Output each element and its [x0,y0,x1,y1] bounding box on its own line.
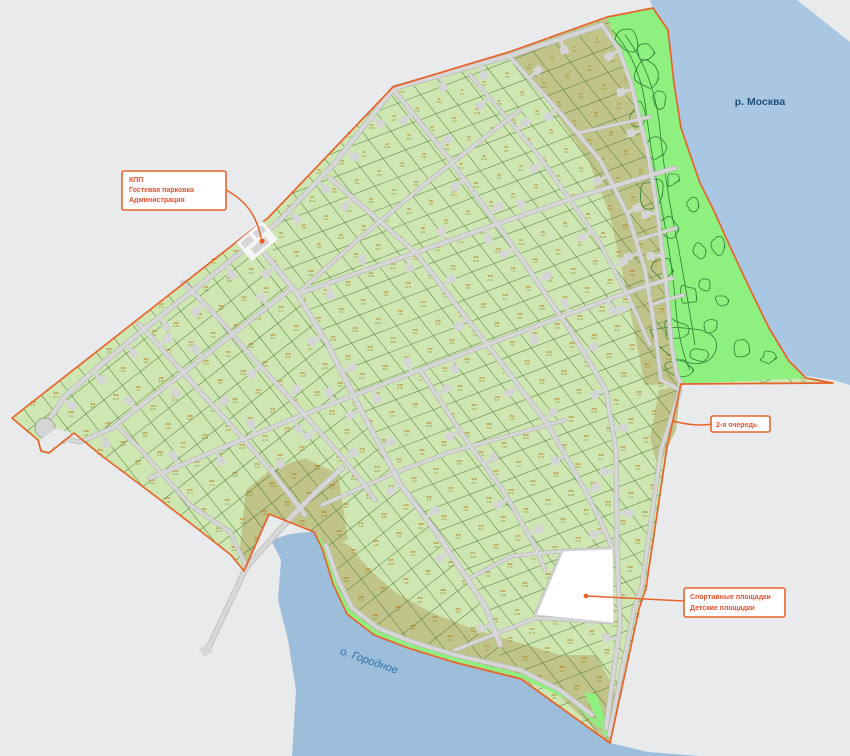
svg-text:386: 386 [403,577,408,581]
svg-text:8.06: 8.06 [437,101,442,104]
svg-text:5.19: 5.19 [359,525,364,528]
svg-text:6.34: 6.34 [233,401,238,404]
svg-text:190: 190 [629,343,634,347]
svg-text:5.46: 5.46 [569,420,574,423]
svg-text:11.78: 11.78 [529,632,536,635]
svg-text:8.56: 8.56 [382,516,387,519]
svg-text:4.37: 4.37 [392,119,397,122]
svg-text:11.00: 11.00 [487,279,494,282]
svg-text:6.50: 6.50 [434,546,439,549]
svg-text:11.51: 11.51 [508,492,515,495]
svg-text:11.07: 11.07 [465,213,472,216]
svg-text:11.00: 11.00 [481,158,488,161]
svg-text:7.80: 7.80 [552,697,557,700]
svg-text:363: 363 [336,529,341,533]
svg-text:10.15: 10.15 [338,237,345,240]
svg-text:КПП: КПП [129,177,143,184]
svg-text:5.05: 5.05 [315,394,320,397]
svg-text:11.24: 11.24 [546,354,553,357]
svg-text:5.29: 5.29 [397,535,402,538]
svg-text:10.08: 10.08 [470,556,477,559]
svg-text:4.82: 4.82 [481,306,486,309]
svg-text:4.69: 4.69 [466,287,471,290]
svg-text:5.34: 5.34 [302,227,307,230]
svg-text:354: 354 [568,489,573,493]
svg-text:5.21: 5.21 [623,227,628,230]
svg-text:9.51: 9.51 [464,509,469,512]
svg-text:4.98: 4.98 [398,313,403,316]
svg-text:5.95: 5.95 [422,156,427,159]
svg-text:10.49: 10.49 [330,339,337,342]
svg-text:10.55: 10.55 [321,515,328,518]
svg-text:5.24: 5.24 [195,465,200,468]
svg-text:11.83: 11.83 [173,325,180,328]
svg-text:10.18: 10.18 [202,437,209,440]
svg-text:7.58: 7.58 [570,346,575,349]
svg-text:49: 49 [504,145,508,149]
svg-text:369: 369 [433,541,438,545]
svg-text:11.41: 11.41 [216,530,223,533]
svg-text:5.87: 5.87 [212,262,217,265]
svg-text:297: 297 [643,436,648,440]
svg-text:10.97: 10.97 [406,212,413,215]
svg-text:6.93: 6.93 [610,60,615,63]
svg-text:6.48: 6.48 [590,633,595,636]
svg-text:11.23: 11.23 [397,387,404,390]
svg-text:302: 302 [209,479,214,483]
svg-text:10.87: 10.87 [406,138,413,141]
svg-text:6.91: 6.91 [384,294,389,297]
svg-text:5.17: 5.17 [623,301,628,304]
svg-text:4.57: 4.57 [411,628,416,631]
svg-text:8.42: 8.42 [643,515,648,518]
svg-text:329: 329 [164,496,169,500]
svg-text:10.90: 10.90 [605,504,612,507]
svg-text:371: 371 [470,551,475,555]
svg-text:10.72: 10.72 [451,194,458,197]
svg-text:5.26: 5.26 [448,639,453,642]
svg-text:7.32: 7.32 [563,225,568,228]
svg-text:6.74: 6.74 [508,566,513,569]
svg-text:5.19: 5.19 [339,311,344,314]
svg-text:9.31: 9.31 [497,177,502,180]
svg-text:7.19: 7.19 [330,487,335,490]
svg-text:11.30: 11.30 [262,439,269,442]
svg-text:154: 154 [599,305,604,309]
svg-text:6.12: 6.12 [526,289,531,292]
svg-text:6.80: 6.80 [659,385,664,388]
svg-text:8.26: 8.26 [271,337,276,340]
svg-text:9.80: 9.80 [652,413,657,416]
svg-text:11.86: 11.86 [500,594,507,597]
svg-text:168: 168 [293,324,298,328]
svg-text:10.79: 10.79 [405,286,412,289]
svg-text:7.88: 7.88 [227,280,232,283]
svg-text:59: 59 [310,195,314,199]
svg-text:10.41: 10.41 [545,503,552,506]
svg-text:6.10: 6.10 [249,272,254,275]
svg-text:319: 319 [471,477,476,481]
svg-text:10.27: 10.27 [149,482,156,485]
svg-text:11.57: 11.57 [479,380,486,383]
svg-text:349: 349 [500,515,505,519]
svg-text:11.06: 11.06 [269,485,276,488]
svg-text:4.44: 4.44 [373,618,378,621]
svg-text:6.64: 6.64 [308,348,313,351]
svg-text:413: 413 [447,634,452,638]
svg-text:8.10: 8.10 [360,451,365,454]
svg-text:6.11: 6.11 [508,640,513,643]
svg-text:98: 98 [586,212,590,216]
svg-text:7.63: 7.63 [621,523,626,526]
svg-text:р. Москва: р. Москва [735,96,786,108]
svg-text:11.58: 11.58 [601,88,608,91]
svg-text:251: 251 [457,384,462,388]
svg-text:68: 68 [474,181,478,185]
svg-text:6.09: 6.09 [211,336,216,339]
svg-text:10.31: 10.31 [359,377,366,380]
svg-text:149: 149 [502,293,507,297]
svg-text:7.14: 7.14 [511,270,516,273]
svg-text:6.07: 6.07 [271,411,276,414]
svg-text:6.22: 6.22 [181,446,186,449]
svg-text:428: 428 [596,675,601,679]
svg-text:5.21: 5.21 [219,308,224,311]
svg-text:8.21: 8.21 [91,406,96,409]
svg-text:5.30: 5.30 [630,274,635,277]
svg-text:326: 326 [598,453,603,457]
svg-text:7.57: 7.57 [485,649,490,652]
svg-text:7.34: 7.34 [579,170,584,173]
svg-text:11.55: 11.55 [523,437,530,440]
svg-text:10.26: 10.26 [300,375,307,378]
svg-text:7.37: 7.37 [413,406,418,409]
svg-text:11.48: 11.48 [365,571,372,574]
svg-text:5.93: 5.93 [629,422,634,425]
svg-text:8.64: 8.64 [414,184,419,187]
svg-text:11.81: 11.81 [369,127,376,130]
svg-text:4.67: 4.67 [561,521,566,524]
svg-text:11.88: 11.88 [352,330,359,333]
svg-text:11.69: 11.69 [522,659,529,662]
svg-text:108: 108 [293,250,298,254]
svg-text:8.02: 8.02 [560,670,565,673]
svg-text:4.94: 4.94 [564,151,569,154]
svg-text:4.94: 4.94 [452,120,457,123]
svg-text:10.97: 10.97 [150,408,157,411]
svg-text:392: 392 [500,589,505,593]
svg-text:7.19: 7.19 [533,261,538,264]
svg-text:3: 3 [573,45,575,49]
svg-text:6.02: 6.02 [346,284,351,287]
svg-text:8.25: 8.25 [472,408,477,411]
svg-text:4.11: 4.11 [31,404,36,407]
svg-text:8.38: 8.38 [549,132,554,135]
svg-text:8.14: 8.14 [436,323,441,326]
svg-text:7.52: 7.52 [555,401,560,404]
svg-text:10.45: 10.45 [375,322,382,325]
svg-text:11.61: 11.61 [599,310,606,313]
svg-text:153: 153 [584,286,589,290]
svg-text:15: 15 [557,100,561,104]
svg-text:5.38: 5.38 [614,403,619,406]
svg-text:7.63: 7.63 [362,155,367,158]
svg-text:417: 417 [529,627,534,631]
svg-text:11.28: 11.28 [329,413,336,416]
svg-text:11.84: 11.84 [621,375,628,378]
svg-text:11.20: 11.20 [450,268,457,271]
svg-text:37: 37 [617,102,621,106]
svg-text:10.63: 10.63 [539,308,546,311]
svg-text:9.52: 9.52 [376,248,381,251]
svg-text:4.94: 4.94 [317,246,322,249]
svg-text:322: 322 [530,479,535,483]
svg-text:6.04: 6.04 [433,620,438,623]
svg-text:9.07: 9.07 [556,253,561,256]
svg-text:4.46: 4.46 [400,91,405,94]
svg-text:395: 395 [545,572,550,576]
svg-text:6.44: 6.44 [456,537,461,540]
svg-text:9.59: 9.59 [400,165,405,168]
svg-text:5.63: 5.63 [144,361,149,364]
svg-text:9.09: 9.09 [628,570,633,573]
svg-text:348: 348 [486,496,491,500]
svg-text:288: 288 [486,422,491,426]
svg-text:8.12: 8.12 [412,480,417,483]
svg-text:10.61: 10.61 [541,86,548,89]
svg-text:6.91: 6.91 [264,291,269,294]
svg-text:4.97: 4.97 [584,439,589,442]
svg-text:185: 185 [554,322,559,326]
svg-text:7.47: 7.47 [136,389,141,392]
svg-text:11.28: 11.28 [285,356,292,359]
svg-text:7.40: 7.40 [520,94,525,97]
svg-text:9.35: 9.35 [631,199,636,202]
svg-text:289: 289 [501,441,506,445]
svg-text:7.14: 7.14 [449,565,454,568]
svg-text:6.55: 6.55 [457,463,462,466]
svg-text:9.92: 9.92 [413,332,418,335]
svg-text:4.20: 4.20 [279,310,284,313]
svg-text:264: 264 [97,448,102,452]
svg-text:399: 399 [372,613,377,617]
svg-text:41: 41 [362,150,366,154]
svg-text:407: 407 [514,608,519,612]
svg-text:256: 256 [568,415,573,419]
svg-text:374: 374 [515,534,520,538]
svg-text:4.43: 4.43 [436,249,441,252]
svg-text:10.00: 10.00 [322,367,329,370]
svg-text:9.44: 9.44 [617,107,622,110]
svg-text:54: 54 [587,138,591,142]
svg-text:312: 312 [374,465,379,469]
svg-text:9.78: 9.78 [472,482,477,485]
svg-text:4: 4 [588,64,590,68]
svg-text:183: 183 [517,312,522,316]
svg-text:9.73: 9.73 [210,484,215,487]
svg-text:4.48: 4.48 [594,115,599,118]
svg-text:7.21: 7.21 [465,361,470,364]
svg-text:23: 23 [407,133,411,137]
svg-text:5.52: 5.52 [636,542,641,545]
svg-text:8.29: 8.29 [595,41,600,44]
svg-text:5.69: 5.69 [188,418,193,421]
svg-text:275: 275 [262,434,267,438]
svg-text:5.99: 5.99 [166,427,171,430]
svg-text:11.64: 11.64 [614,329,621,332]
svg-text:420: 420 [581,656,586,660]
svg-text:9.21: 9.21 [572,50,577,53]
svg-text:4.42: 4.42 [159,306,164,309]
svg-text:8.75: 8.75 [392,193,397,196]
svg-text:143: 143 [405,281,410,285]
svg-text:6.71: 6.71 [434,472,439,475]
svg-text:6.84: 6.84 [450,342,455,345]
svg-text:11.62: 11.62 [368,275,375,278]
svg-text:6.23: 6.23 [541,234,546,237]
svg-text:10.40: 10.40 [240,373,247,376]
svg-text:4.88: 4.88 [374,544,379,547]
svg-text:6.51: 6.51 [355,182,360,185]
svg-text:Спортивные площадки: Спортивные площадки [690,594,771,601]
svg-text:6.07: 6.07 [518,317,523,320]
svg-text:Гостевая парковка: Гостевая парковка [129,187,194,194]
svg-text:4.85: 4.85 [143,435,148,438]
svg-text:6.08: 6.08 [487,427,492,430]
svg-text:263: 263 [83,429,88,433]
svg-text:8.04: 8.04 [345,432,350,435]
svg-text:9.36: 9.36 [553,623,558,626]
svg-text:293: 293 [583,434,588,438]
svg-text:125: 125 [570,267,575,271]
svg-text:4.72: 4.72 [427,499,432,502]
svg-text:8.69: 8.69 [256,392,261,395]
svg-text:201: 201 [262,360,267,364]
svg-text:7.79: 7.79 [489,205,494,208]
svg-text:208: 208 [359,372,364,376]
svg-text:77: 77 [616,176,620,180]
svg-text:9.26: 9.26 [645,366,650,369]
svg-text:10.27: 10.27 [120,444,127,447]
svg-text:7.82: 7.82 [420,453,425,456]
svg-text:4.14: 4.14 [554,475,559,478]
svg-text:175: 175 [390,336,395,340]
svg-text:8.22: 8.22 [337,534,342,537]
svg-text:10.24: 10.24 [473,260,480,263]
svg-text:22: 22 [392,114,396,118]
svg-text:50: 50 [519,164,523,168]
svg-text:159: 159 [151,329,156,333]
svg-text:134: 134 [263,286,268,290]
svg-text:5.96: 5.96 [568,642,573,645]
svg-text:333: 333 [239,517,244,521]
svg-text:5.76: 5.76 [292,477,297,480]
svg-text:359: 359 [642,510,647,514]
svg-text:7.96: 7.96 [426,573,431,576]
svg-text:10.72: 10.72 [203,363,210,366]
svg-text:163: 163 [210,331,215,335]
svg-text:8.99: 8.99 [159,380,164,383]
svg-text:10.08: 10.08 [239,447,246,450]
svg-text:47: 47 [459,162,463,166]
svg-text:Администрация: Администрация [129,197,185,204]
svg-text:5.91: 5.91 [352,552,357,555]
svg-text:4.47: 4.47 [324,218,329,221]
svg-text:5.02: 5.02 [525,363,530,366]
svg-text:5.14: 5.14 [255,466,260,469]
svg-text:403: 403 [432,615,437,619]
svg-text:344: 344 [403,503,408,507]
svg-text:5.43: 5.43 [346,358,351,361]
svg-text:6.72: 6.72 [653,265,658,268]
svg-text:112: 112 [376,243,381,247]
svg-text:9.57: 9.57 [197,317,202,320]
svg-text:7.69: 7.69 [279,236,284,239]
svg-text:269: 269 [165,422,170,426]
svg-text:4.18: 4.18 [585,291,590,294]
svg-text:11.94: 11.94 [420,305,427,308]
svg-text:418: 418 [544,646,549,650]
svg-text:5.04: 5.04 [285,504,290,507]
svg-text:199: 199 [225,350,230,354]
svg-text:4.58: 4.58 [501,520,506,523]
svg-text:4.46: 4.46 [442,518,447,521]
svg-text:5.61: 5.61 [419,527,424,530]
svg-text:11.65: 11.65 [554,327,561,330]
svg-text:69: 69 [489,200,493,204]
svg-text:6.98: 6.98 [535,113,540,116]
svg-text:10.82: 10.82 [367,349,374,352]
svg-text:10.23: 10.23 [246,494,253,497]
svg-text:9.84: 9.84 [504,150,509,153]
svg-text:6.92: 6.92 [630,348,635,351]
svg-text:42: 42 [377,169,381,173]
svg-text:11.90: 11.90 [591,337,598,340]
svg-text:6.07: 6.07 [344,506,349,509]
svg-text:270: 270 [180,441,185,445]
svg-text:8.49: 8.49 [226,429,231,432]
svg-text:5.34: 5.34 [249,346,254,349]
svg-text:18: 18 [602,83,606,87]
svg-text:4.22: 4.22 [495,325,500,328]
svg-text:5.65: 5.65 [609,134,614,137]
svg-text:4.30: 4.30 [460,93,465,96]
svg-text:7.45: 7.45 [397,461,402,464]
svg-text:124: 124 [555,248,560,252]
svg-text:358: 358 [628,491,633,495]
svg-text:355: 355 [583,508,588,512]
svg-text:128: 128 [629,269,634,273]
svg-text:4.64: 4.64 [421,231,426,234]
svg-text:7.40: 7.40 [487,501,492,504]
svg-text:316: 316 [433,467,438,471]
svg-text:6.59: 6.59 [527,67,532,70]
svg-text:4.40: 4.40 [411,554,416,557]
svg-text:4.15: 4.15 [510,418,515,421]
svg-text:5.57: 5.57 [121,370,126,373]
svg-text:174: 174 [375,317,380,321]
svg-text:402: 402 [417,596,422,600]
svg-text:11.77: 11.77 [187,492,194,495]
svg-text:7.55: 7.55 [285,430,290,433]
svg-text:6.74: 6.74 [503,298,508,301]
svg-text:5.79: 5.79 [565,77,570,80]
svg-text:6.87: 6.87 [578,244,583,247]
svg-text:9.60: 9.60 [404,508,409,511]
svg-text:4.83: 4.83 [548,280,553,283]
svg-text:11.53: 11.53 [426,425,433,428]
svg-text:7.17: 7.17 [443,370,448,373]
